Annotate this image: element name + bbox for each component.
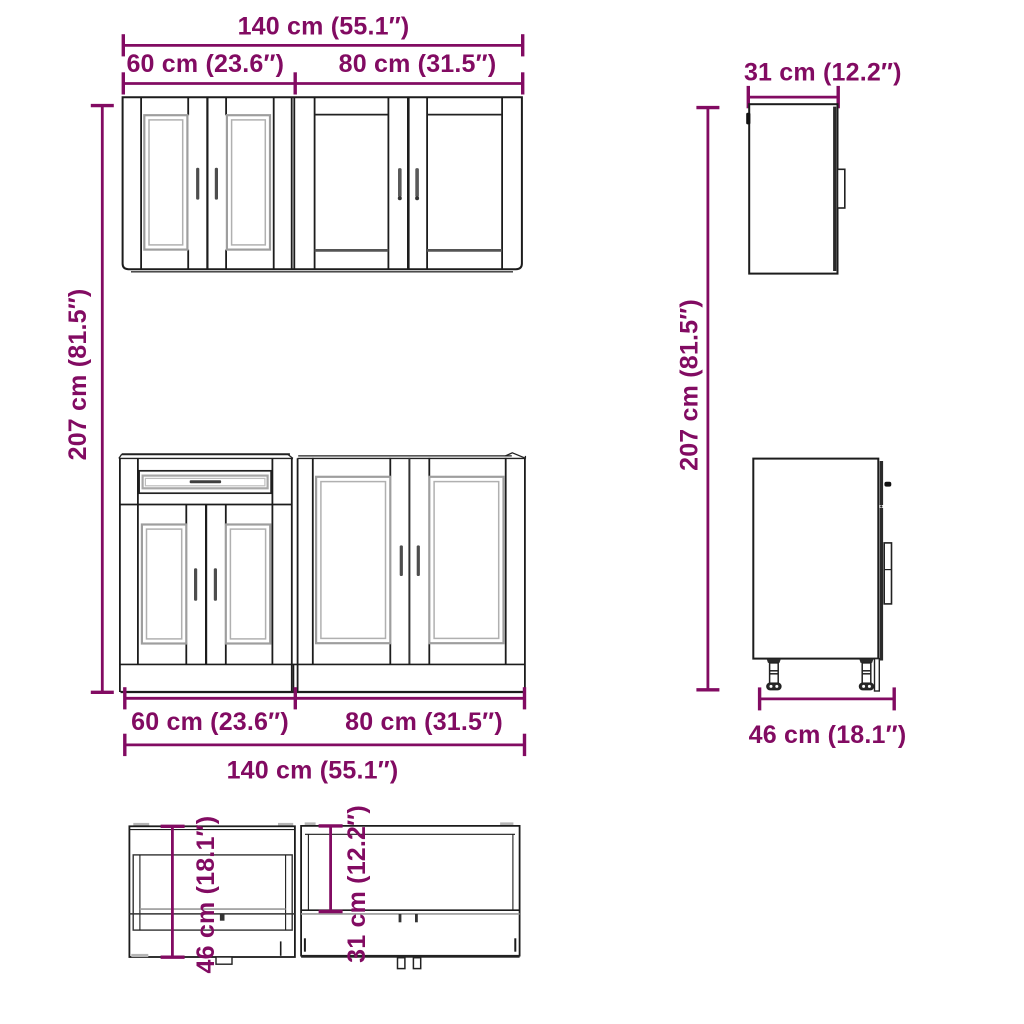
svg-text:60 cm (23.6″): 60 cm (23.6″) bbox=[131, 708, 289, 736]
svg-text:140 cm (55.1″): 140 cm (55.1″) bbox=[227, 757, 399, 785]
svg-text:31 cm (12.2″): 31 cm (12.2″) bbox=[343, 805, 371, 963]
svg-text:207 cm (81.5″): 207 cm (81.5″) bbox=[64, 289, 92, 461]
svg-text:46 cm (18.1″): 46 cm (18.1″) bbox=[192, 816, 220, 974]
svg-text:46 cm (18.1″): 46 cm (18.1″) bbox=[749, 721, 907, 749]
svg-text:31 cm (12.2″): 31 cm (12.2″) bbox=[744, 59, 902, 87]
svg-text:207 cm (81.5″): 207 cm (81.5″) bbox=[675, 299, 703, 471]
svg-text:60 cm (23.6″): 60 cm (23.6″) bbox=[126, 50, 284, 78]
svg-text:80 cm (31.5″): 80 cm (31.5″) bbox=[345, 708, 503, 736]
svg-text:140 cm (55.1″): 140 cm (55.1″) bbox=[238, 12, 410, 40]
svg-text:80 cm (31.5″): 80 cm (31.5″) bbox=[339, 50, 497, 78]
